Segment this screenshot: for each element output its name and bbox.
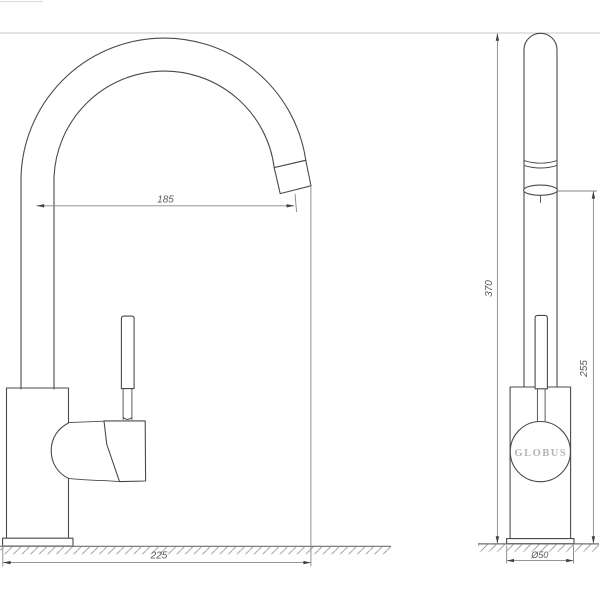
spout-inner-arc [54, 71, 274, 389]
dim-arrow-225-right [303, 561, 311, 564]
dimension-overall-reach: 225 [3, 186, 311, 566]
dimension-overall-height: 370 [484, 33, 499, 544]
dim-arrow-370-top [496, 33, 499, 41]
dim-arrow-50-right [566, 559, 573, 562]
dim-arrow-255-top [592, 191, 595, 199]
handle-stem-side [123, 389, 132, 420]
handle-lever-front [535, 315, 547, 388]
brand-logo-text: GLOBUS [514, 448, 567, 459]
cartridge-top-line [69, 421, 105, 422]
dim-arrow-255-bottom [592, 536, 595, 544]
aerator-outlet [524, 185, 558, 195]
base-plate-front [507, 539, 574, 544]
dim-label-370: 370 [484, 280, 495, 297]
dim-label-185: 185 [157, 195, 174, 206]
dimension-annotations: 185 225 370 255 [3, 33, 597, 566]
front-view: GLOBUS [478, 33, 599, 551]
dim-ext-225 [3, 186, 311, 566]
ground-hatch-left [0, 547, 391, 554]
dim-arrow-370-bottom [496, 536, 499, 544]
body-outline [7, 388, 69, 538]
dim-arrow-50-left [507, 559, 514, 562]
faucet-technical-drawing: GLOBUS 185 225 370 [0, 0, 600, 600]
handle-cap [104, 421, 146, 482]
side-view [0, 38, 391, 554]
dim-label-255: 255 [579, 360, 590, 378]
dim-arrow-225-left [3, 561, 11, 564]
dim-arrow-185-left [37, 204, 45, 207]
drawing-canvas: GLOBUS 185 225 370 [0, 0, 600, 600]
handle-lever-side [121, 316, 134, 389]
spout-outer-arc [21, 38, 306, 389]
cartridge-bottom-line [69, 478, 120, 481]
base-plate-side [3, 538, 73, 546]
aerator-ring-seams [524, 161, 557, 168]
dim-arrow-185-right [287, 204, 295, 207]
aerator-tip [274, 160, 311, 193]
dim-label-225: 225 [150, 551, 168, 562]
dim-ext-185 [295, 194, 297, 212]
dimension-spout-reach: 185 [37, 194, 297, 212]
dim-label-50: Ø50 [530, 550, 548, 560]
